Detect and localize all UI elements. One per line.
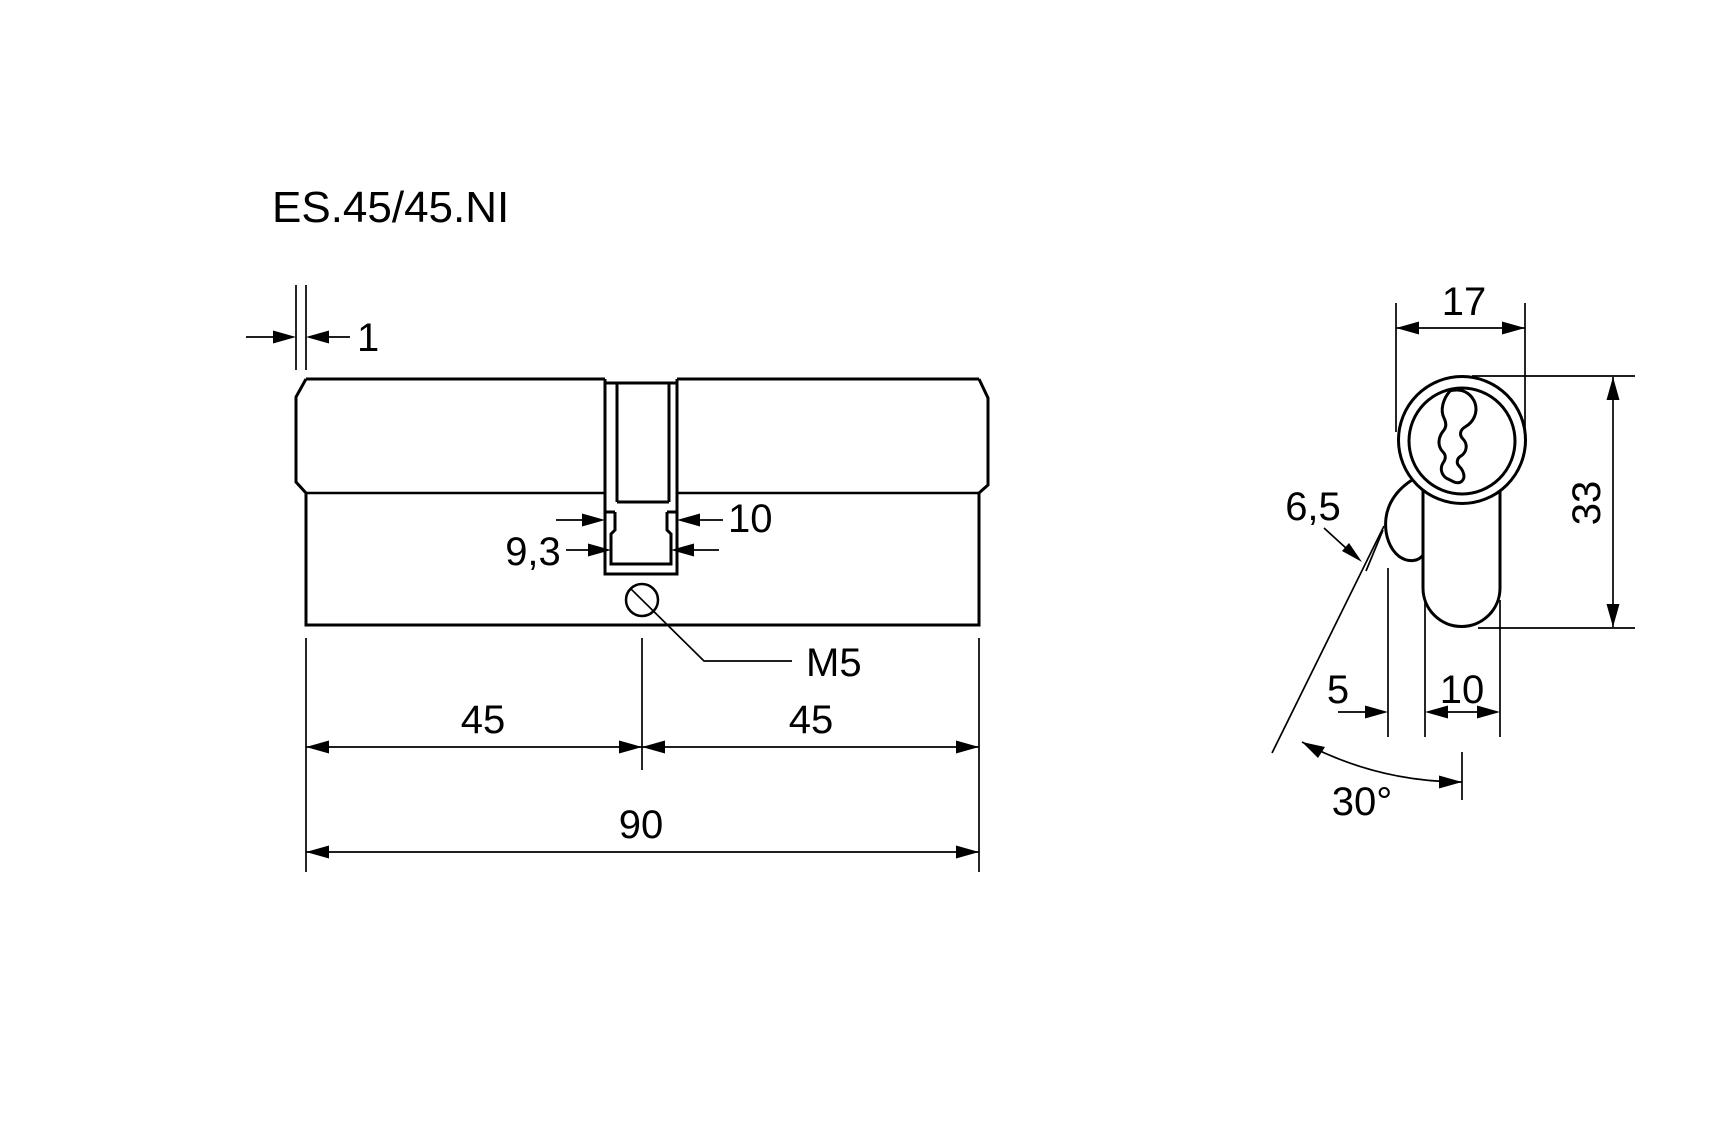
- technical-drawing: ES.45/45.NI: [0, 0, 1721, 1123]
- dim-label-angle: 30°: [1332, 780, 1393, 824]
- arrowhead: [619, 741, 642, 754]
- arrowhead: [1396, 322, 1419, 335]
- dim-cam-slot-width: 10: [556, 497, 773, 541]
- arrowhead: [671, 544, 694, 557]
- dim-label-cam-lower-width: 9,3: [505, 530, 561, 574]
- dim-label-width: 17: [1442, 280, 1487, 324]
- arrowhead: [273, 331, 296, 344]
- arrowhead: [642, 741, 665, 754]
- arrowhead: [1607, 604, 1620, 627]
- dim-label-height: 33: [1565, 481, 1609, 526]
- arrowhead: [1439, 776, 1462, 789]
- arrowhead: [306, 846, 329, 859]
- keyway-profile: [1439, 390, 1476, 483]
- arrowhead: [1302, 742, 1325, 758]
- dim-label-total: 90: [619, 803, 664, 847]
- drawing-title: ES.45/45.NI: [272, 183, 509, 232]
- left-end-cap: [296, 379, 306, 493]
- dim-end-cap: 1: [246, 285, 379, 370]
- arrowhead: [677, 514, 700, 527]
- m5-leader: M5: [631, 589, 862, 685]
- arrowhead: [582, 514, 605, 527]
- technical-drawing-page: ES.45/45.NI: [0, 0, 1721, 1123]
- front-view: 17 33 6,5 30°: [1272, 280, 1635, 824]
- arrowhead: [1502, 322, 1525, 335]
- right-end-cap: [979, 379, 988, 493]
- angle-line: [1272, 526, 1384, 753]
- dim-label-cam-slot-width: 10: [728, 497, 773, 541]
- arrowhead: [306, 331, 329, 344]
- cam-detail: [605, 379, 677, 574]
- blade-bottom-arc: [1423, 588, 1500, 627]
- profile-outline: [1386, 377, 1526, 627]
- cam-tip-tick: [1366, 530, 1383, 571]
- arrowhead: [1342, 543, 1362, 562]
- arrowhead: [588, 544, 611, 557]
- angle-arc: [1302, 742, 1462, 782]
- cam-inner-bottom: [611, 512, 671, 564]
- dim-total-length: 90: [306, 803, 979, 859]
- dim-height: 33: [1472, 376, 1635, 628]
- dim-label-screw: M5: [806, 641, 862, 685]
- arrowhead: [1365, 706, 1388, 719]
- cam-lug: [1386, 480, 1423, 561]
- arrowhead: [956, 741, 979, 754]
- arrowhead: [306, 741, 329, 754]
- blade-outline: [306, 493, 979, 625]
- side-view: 1 10 9,3 M5: [246, 285, 988, 872]
- arrowhead: [1607, 377, 1620, 400]
- dim-label-left-half: 45: [461, 698, 506, 742]
- dim-label-cam-tip: 6,5: [1285, 485, 1341, 529]
- arrowhead: [956, 846, 979, 859]
- plug-circle: [1409, 388, 1515, 494]
- dim-label-end-cap: 1: [357, 316, 379, 360]
- dim-label-right-half: 45: [789, 698, 834, 742]
- dim-label-cam-offset: 5: [1327, 668, 1349, 712]
- dim-cam-offset-and-blade: 5 10: [1327, 568, 1500, 737]
- dim-label-blade-width: 10: [1440, 668, 1485, 712]
